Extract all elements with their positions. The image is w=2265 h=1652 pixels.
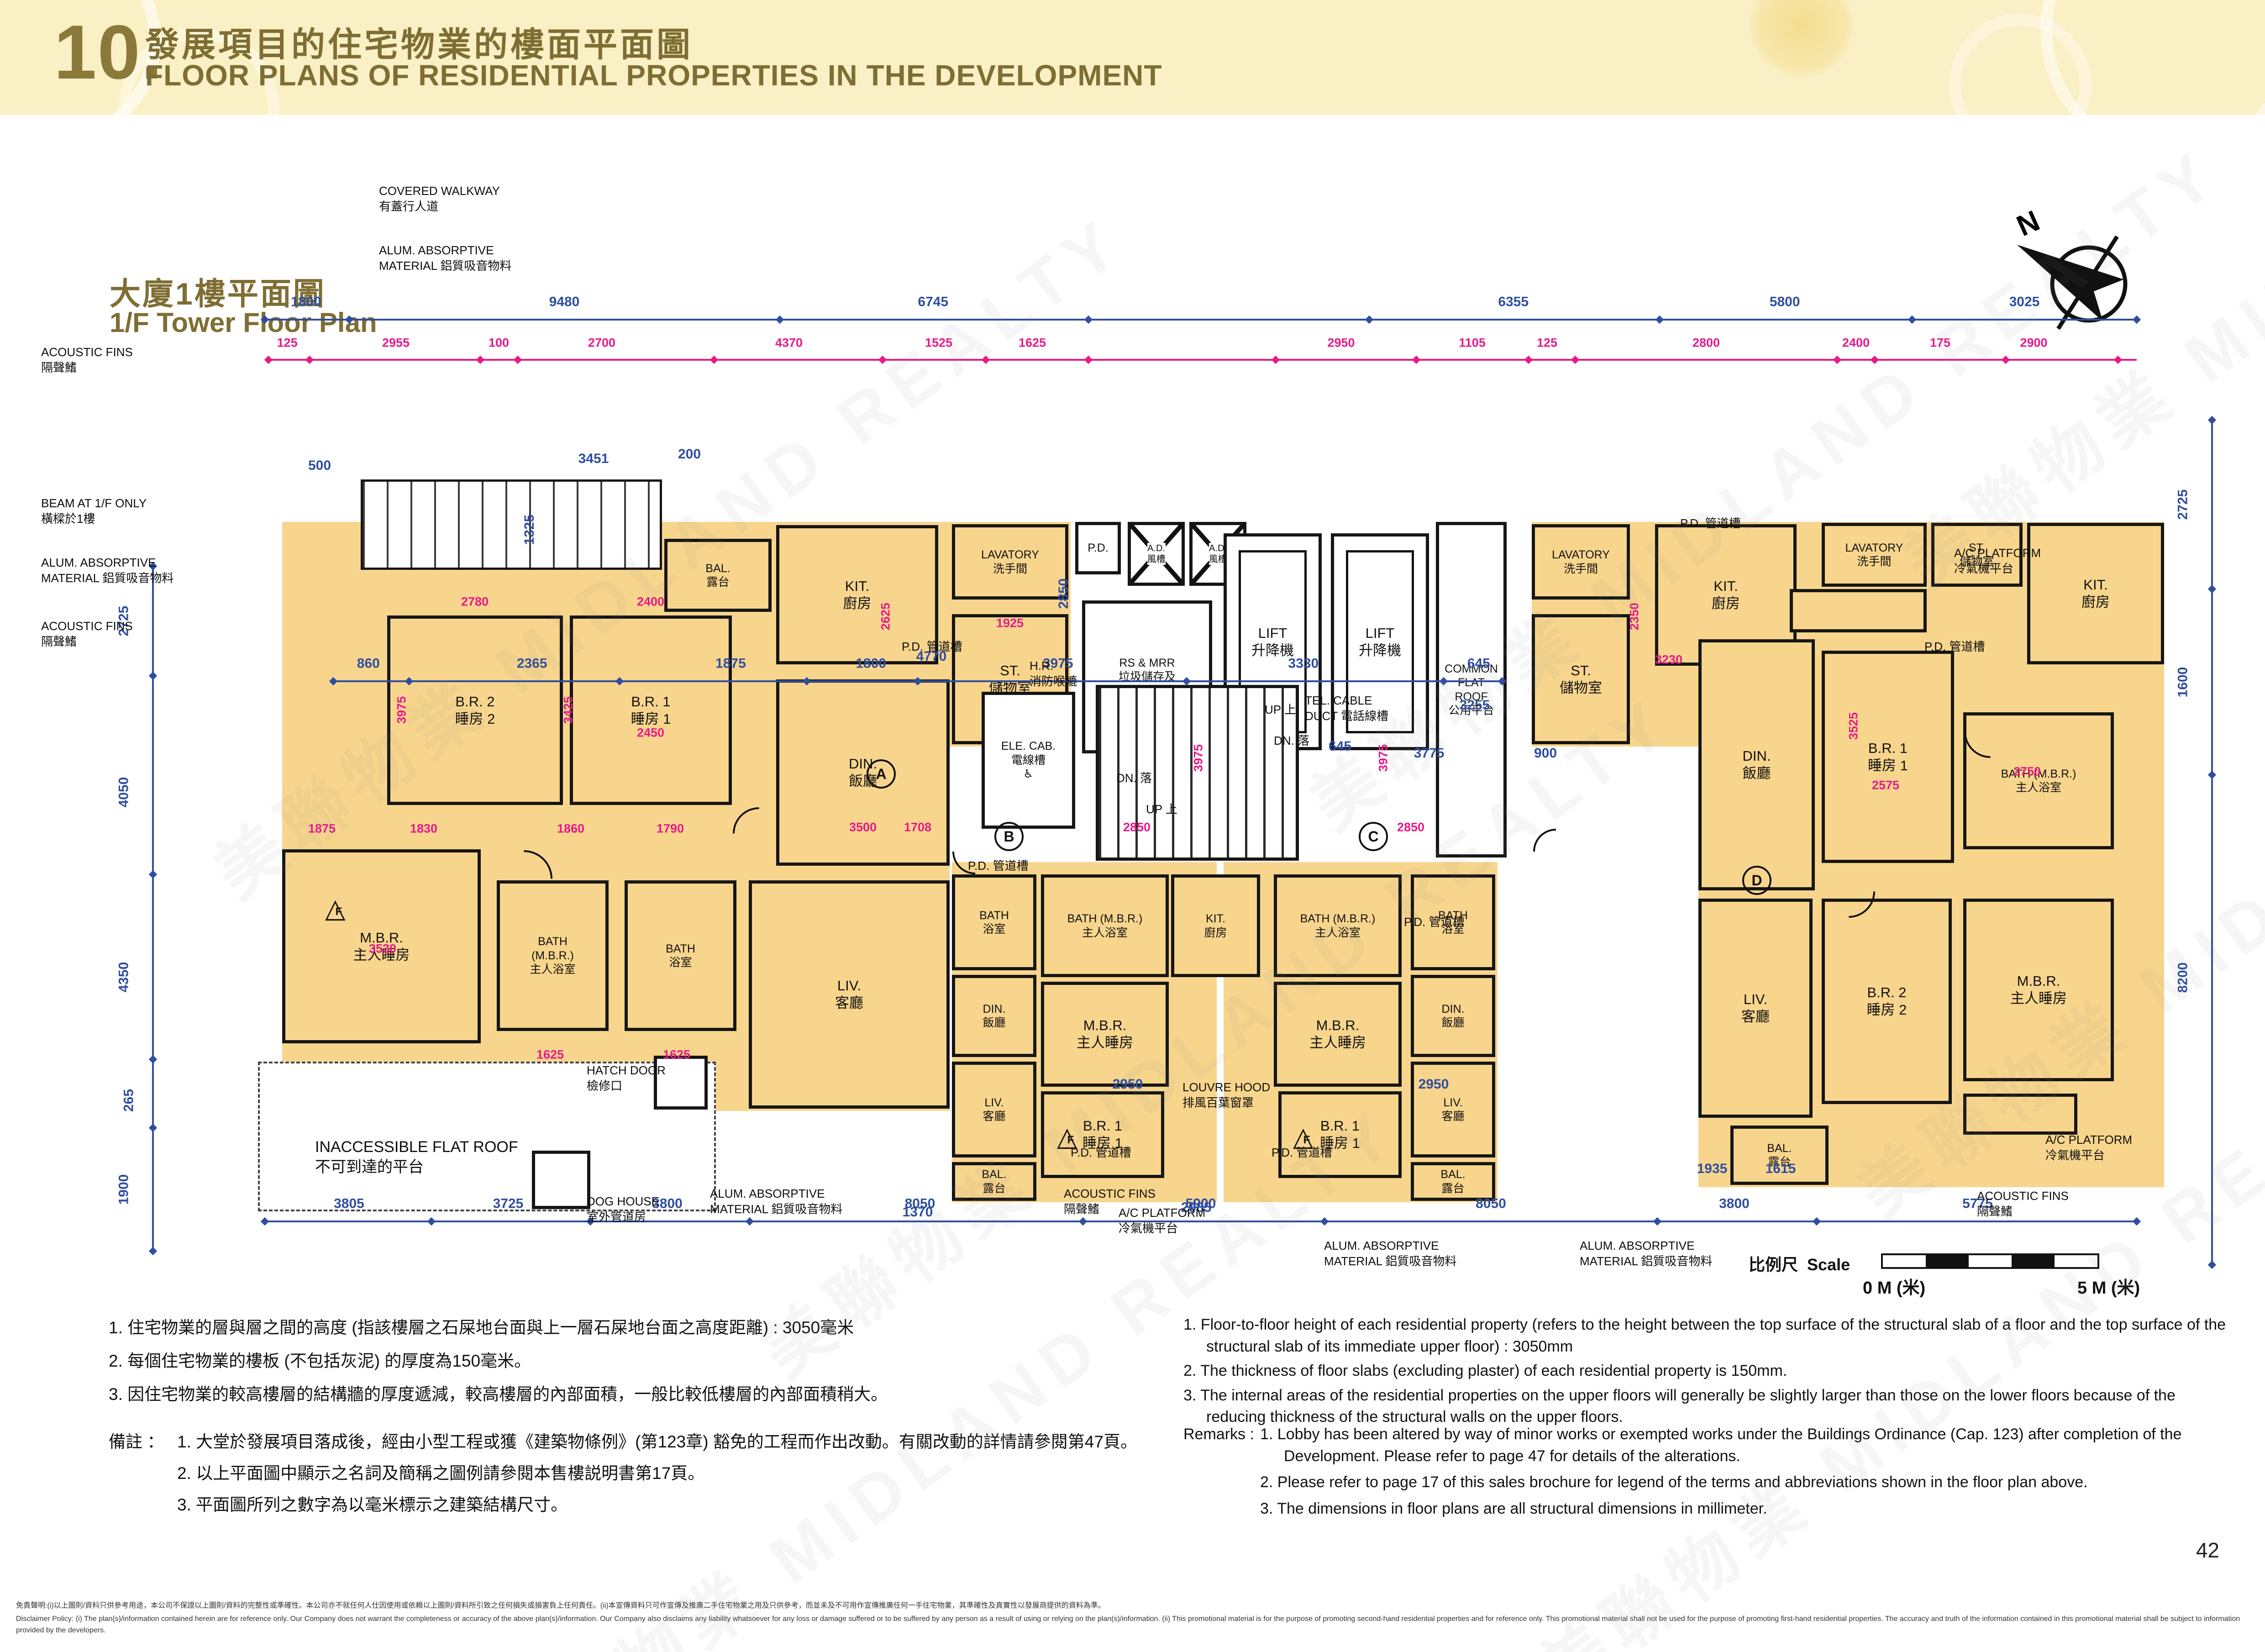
dimension-value: 2400: [1842, 336, 1870, 350]
room-label: LAVATORY洗手間: [1845, 541, 1903, 569]
dimension-tick: [2002, 356, 2010, 364]
scale-label-en: Scale: [1807, 1255, 1850, 1274]
dimension-tick: [1440, 677, 1448, 685]
room-covered-walkway: [361, 479, 662, 570]
room-br1-a: B.R. 1睡房 1: [570, 616, 732, 805]
dimension-value: 645: [1467, 656, 1490, 671]
dimension-value: 2450: [637, 726, 664, 740]
room-bal-b: BAL.露台: [952, 1162, 1036, 1201]
dimension-tick: [261, 316, 269, 324]
room-liv-c: LIV.客廳: [1411, 1062, 1495, 1157]
room-liv-a: LIV.客廳: [749, 880, 950, 1109]
room-din-c: DIN.飯廳: [1411, 975, 1495, 1057]
dimension-value: 5800: [1770, 294, 1800, 310]
dimension-value: 2950: [1327, 336, 1355, 350]
room-label: LIV.客廳: [983, 1096, 1005, 1124]
room-label: BATH (M.B.R.)主人浴室: [1300, 912, 1376, 940]
header-band: 10. 發展項目的住宅物業的樓面平面圖 FLOOR PLANS OF RESID…: [0, 0, 2265, 115]
dimension-tick: [710, 356, 718, 364]
room-din-b: DIN.飯廳: [952, 975, 1036, 1057]
dimension-value: 1800: [856, 656, 886, 671]
unit-mark: C: [1359, 822, 1388, 851]
room-lavatory-c: LAVATORY洗手間: [1532, 524, 1630, 600]
dimension-value: 3805: [334, 1196, 364, 1211]
room-label: B.R. 1睡房 1: [631, 693, 671, 728]
room-acp-d-bot: [1963, 1094, 2077, 1135]
plan-callout: DOG HOUSE室外管道房: [587, 1194, 659, 1225]
dimension-value: 6745: [918, 294, 948, 310]
plan-callout: ACOUSTIC FINS隔聲鰭: [1064, 1186, 1156, 1217]
note-item: 3. 因住宅物業的較高樓層的結構牆的厚度遞減，較高樓層的內部面積，一般比較低樓層…: [109, 1381, 1140, 1408]
room-label: BATH浴室: [666, 942, 695, 970]
note-item: 1. Lobby has been altered by way of mino…: [1260, 1424, 2243, 1467]
room-kit-b: KIT.廚房: [1171, 874, 1260, 977]
triangle-letter: F: [1293, 1134, 1320, 1147]
dimension-value: 200: [678, 447, 701, 462]
dimension-value: 1625: [536, 1048, 564, 1062]
room-label: LIV.客廳: [835, 977, 863, 1012]
room-dog-house-box: [532, 1151, 590, 1209]
room-label: M.B.R.主人睡房: [1309, 1017, 1366, 1052]
room-br2-a: B.R. 2睡房 2: [387, 616, 563, 805]
note-item: 3. The internal areas of the residential…: [1183, 1385, 2233, 1428]
dimension-value: 1325: [522, 515, 537, 545]
room-label: B.R. 1睡房 1: [1868, 740, 1908, 774]
remarks-en: Remarks : 1. Lobby has been altered by w…: [1183, 1424, 2243, 1524]
dimension-value: 1790: [657, 822, 684, 836]
dimension-value: 2850: [1056, 579, 1072, 609]
note-item: 1. 住宅物業的層與層之間的高度 (指該樓層之石屎地台面與上一層石屎地台面之高度…: [109, 1314, 1140, 1341]
dimension-line: 272516008200: [2203, 420, 2221, 1265]
dimension-value: 1105: [1459, 336, 1486, 350]
dimension-value: 2700: [588, 336, 615, 350]
disclaimer-en: Disclaimer Policy: (i) The plan(s)/infor…: [16, 1614, 2251, 1636]
room-label: LAVATORY洗手間: [981, 548, 1039, 576]
dimension-value: 3975: [1192, 744, 1206, 772]
dimension-tick: [914, 677, 922, 685]
dimension-value: 125: [277, 336, 298, 350]
note-item: 1. Floor-to-floor height of each residen…: [1183, 1314, 2233, 1357]
note-item: 2. Please refer to page 17 of this sales…: [1260, 1472, 2243, 1494]
dimension-value: 2850: [1123, 821, 1151, 835]
plan-callout: LOUVRE HOOD排風百葉窗罩: [1182, 1080, 1270, 1111]
dimension-value: 3451: [578, 451, 609, 467]
brochure-page: 10. 發展項目的住宅物業的樓面平面圖 FLOOR PLANS OF RESID…: [0, 0, 2265, 1652]
plan-callout: DN. 落: [1116, 771, 1152, 786]
dimension-axis: [2211, 420, 2213, 1265]
plan-callout: COVERED WALKWAY有蓋行人道: [379, 184, 500, 215]
dimension-tick: [149, 1247, 157, 1255]
plan-callout: P.D. 管道槽: [902, 639, 962, 655]
dimension-value: 645: [1329, 739, 1351, 754]
dimension-axis: [152, 566, 154, 1251]
room-liv-b: LIV.客廳: [952, 1062, 1036, 1157]
dimension-tick: [427, 1217, 436, 1226]
dimension-tick: [1908, 316, 1916, 324]
dimension-value: 1600: [2176, 667, 2191, 697]
notes-zh-list: 1. 住宅物業的層與層之間的高度 (指該樓層之石屎地台面與上一層石屎地台面之高度…: [109, 1314, 1140, 1415]
disclaimer-zh: 免責聲明:(i)以上圖則/資料只供參考用途，本公司不保證以上圖則/資料的完整性或…: [16, 1599, 2251, 1610]
dimension-value: 2575: [1872, 779, 1899, 793]
plan-callout: ALUM. ABSORPTIVEMATERIAL 鋁質吸音物料: [710, 1186, 842, 1217]
note-item: 2. The thickness of floor slabs (excludi…: [1183, 1360, 2233, 1382]
dimension-tick: [2208, 771, 2216, 779]
dimension-value: 2750: [2013, 765, 2041, 779]
dimension-tick: [615, 677, 624, 685]
room-label: BATH (M.B.R.)主人浴室: [1067, 912, 1143, 940]
dimension-value: 125: [1537, 336, 1557, 350]
room-mbr-d: M.B.R.主人睡房: [1963, 899, 2114, 1081]
room-bath-b: BATH浴室: [952, 874, 1036, 970]
dimension-value: 2900: [2020, 336, 2047, 350]
dimension-tick: [345, 316, 353, 324]
page-number: 42: [2196, 1538, 2219, 1563]
dimension-tick: [1084, 356, 1093, 364]
room-label: M.B.R.主人睡房: [2010, 973, 2067, 1007]
dimension-line: 180094806745635558003025: [265, 310, 2137, 329]
dimension-line: 1252955100270043701525162529501105125280…: [265, 351, 2137, 369]
room-label: LIV.客廳: [1441, 1096, 1464, 1124]
dimension-value: 1875: [715, 656, 746, 671]
dimension-value: 1800: [291, 294, 321, 310]
room-pd-core: P.D.: [1075, 522, 1121, 574]
dimension-tick: [405, 677, 413, 685]
room-kit-d: KIT.廚房: [2027, 523, 2164, 664]
dimension-tick: [1365, 316, 1373, 324]
fire-equipment-mark: △F: [1293, 1126, 1320, 1152]
dimension-value: 265: [121, 1089, 137, 1112]
plan-callout: ALUM. ABSORPTIVEMATERIAL 鋁質吸音物料: [1324, 1238, 1456, 1269]
dimension-tick: [2208, 585, 2216, 593]
note-item: 2. 以上平面圖中顯示之名詞及簡稱之圖例請參閱本售樓説明書第17頁。: [177, 1460, 1159, 1487]
room-label: B.R. 2睡房 2: [1867, 984, 1907, 1019]
plan-callout: A/C PLATFORM冷氣機平台: [2045, 1132, 2132, 1163]
dimension-tick: [513, 356, 521, 364]
room-br1-d: B.R. 1睡房 1: [1822, 651, 1954, 863]
dimension-axis: [265, 319, 2137, 321]
unit-mark: B: [994, 822, 1024, 851]
room-label: KIT.廚房: [1204, 912, 1227, 940]
room-label: DIN.飯廳: [1743, 747, 1771, 782]
dimension-value: 860: [357, 656, 380, 671]
triangle-letter: F: [1057, 1134, 1084, 1147]
plan-callout: DN. 落: [1274, 733, 1309, 749]
dimension-value: 2955: [382, 336, 410, 350]
scale-start: 0 M (米): [1863, 1273, 1925, 1299]
plan-callout: BEAM AT 1/F ONLY橫樑於1樓: [41, 496, 147, 527]
dimension-tick: [1182, 677, 1191, 685]
dimension-tick: [149, 1124, 157, 1132]
plan-callout: P.D. 管道槽: [968, 858, 1028, 874]
room-label: B.R. 2睡房 2: [455, 693, 495, 728]
dimension-value: 4350: [116, 962, 132, 993]
dimension-value: 2725: [2176, 489, 2191, 520]
room-label: BAL.露台: [705, 562, 730, 589]
plan-callout: TEL. CABLEDUCT 電話線槽: [1305, 693, 1388, 724]
dimension-value: 2400: [637, 595, 664, 609]
room-liv-d: LIV.客廳: [1698, 899, 1813, 1118]
room-st-c: ST.儲物室: [1532, 614, 1630, 744]
dimension-tick: [476, 356, 484, 364]
dimension-tick: [1813, 1217, 1821, 1226]
dimension-value: 1925: [996, 616, 1024, 631]
plan-callout: H.R.消防喉轆: [1030, 658, 1077, 689]
dimension-value: 2625: [879, 603, 893, 630]
dimension-value: 3330: [1288, 656, 1319, 671]
dimension-tick: [149, 672, 157, 680]
dimension-value: 3975: [395, 696, 409, 724]
room-label: BAL.露台: [1440, 1168, 1465, 1195]
dimension-tick: [775, 316, 783, 324]
dimension-tick: [1412, 356, 1420, 364]
dimension-value: 8200: [2176, 963, 2191, 993]
scale-label-zh: 比例尺: [1749, 1255, 1798, 1274]
dimension-value: 3500: [849, 821, 877, 835]
dimension-value: 1625: [1019, 336, 1046, 350]
note-item: 3. The dimensions in floor plans are all…: [1260, 1498, 2243, 1520]
plan-callout: ACOUSTIC FINS隔聲鰭: [41, 345, 133, 376]
dimension-line: 2725405043502651900: [144, 566, 162, 1251]
plan-callout: ACOUSTIC FINS隔聲鰭: [41, 619, 133, 650]
dimension-tick: [1320, 1217, 1328, 1226]
room-din-a: DIN.飯廳: [776, 679, 950, 866]
fire-equipment-mark: △F: [1057, 1126, 1084, 1152]
plan-callout: P.D. 管道槽: [1680, 516, 1740, 531]
dimension-value: 1875: [308, 822, 336, 836]
dimension-tick: [1833, 356, 1841, 364]
unit-mark: A: [867, 759, 896, 789]
dimension-value: 3230: [1655, 653, 1682, 667]
room-mbr-b: M.B.R.主人睡房: [1041, 982, 1169, 1087]
room-label: BAL.露台: [982, 1168, 1006, 1195]
dimension-value: 1370: [903, 1205, 933, 1220]
dimension-value: 3725: [493, 1196, 524, 1211]
dimension-value: 2950: [1419, 1077, 1449, 1092]
dimension-value: 1625: [663, 1048, 690, 1062]
dimension-value: 6355: [1498, 294, 1529, 310]
room-label: DIN.飯廳: [983, 1002, 1005, 1030]
room-bath-mbr-a: BATH(M.B.R.)主人浴室: [497, 880, 609, 1031]
dimension-tick: [1571, 356, 1579, 364]
room-bath-mbr-b: BATH (M.B.R.)主人浴室: [1041, 874, 1169, 977]
room-mbr-c: M.B.R.主人睡房: [1274, 982, 1402, 1087]
dimension-tick: [2208, 416, 2216, 424]
plan-callout: HATCH DOOR檢修口: [587, 1063, 666, 1094]
plan-callout: UP 上: [1146, 802, 1177, 817]
dimension-tick: [305, 356, 314, 364]
dimension-value: 1830: [410, 822, 437, 836]
remarks-zh-list: 1. 大堂於發展項目落成後，經由小型工程或獲《建築物條例》(第123章) 豁免的…: [177, 1428, 1159, 1523]
dimension-tick: [149, 870, 157, 879]
dimension-value: 1900: [116, 1174, 132, 1205]
room-din-d: DIN.飯廳: [1698, 639, 1815, 890]
floral-ornament: [1749, 0, 1854, 78]
dimension-value: 2365: [517, 656, 547, 671]
dimension-value: 8050: [1476, 1196, 1506, 1211]
dimension-tick: [2208, 1261, 2216, 1269]
dimension-value: 1935: [1697, 1161, 1728, 1177]
room-br2-d: B.R. 2睡房 2: [1822, 899, 1952, 1104]
dimension-tick: [1655, 316, 1663, 324]
scale-bar-graphic: [1881, 1253, 2099, 1269]
dimension-tick: [981, 356, 989, 364]
dimension-value: 1860: [557, 822, 584, 836]
dimension-value: 2950: [1113, 1077, 1143, 1092]
room-bath-a: BATH浴室: [625, 880, 736, 1031]
dimension-value: 4370: [775, 336, 803, 350]
plan-callout: INACCESSIBLE FLAT ROOF不可到達的平台: [315, 1137, 518, 1177]
dimension-tick: [1078, 1217, 1087, 1226]
dimension-value: 3530: [369, 942, 396, 956]
dimension-value: 100: [489, 336, 509, 350]
dimension-tick: [803, 677, 811, 685]
room-lavatory-d: LAVATORY洗手間: [1822, 523, 1927, 587]
room-ad-1: A.D.風槽: [1128, 522, 1185, 586]
dimension-value: 2350: [1628, 603, 1642, 630]
room-lavatory-a: LAVATORY洗手間: [952, 524, 1068, 600]
dimension-tick: [149, 1055, 157, 1063]
dimension-value: 2780: [461, 595, 489, 609]
dimension-value: 175: [1930, 336, 1950, 350]
dimension-value: 900: [1534, 746, 1557, 761]
dimension-value: 9480: [549, 294, 580, 310]
dimension-tick: [261, 1217, 269, 1226]
fire-equipment-mark: △F: [325, 898, 352, 924]
dimension-value: 4050: [116, 777, 132, 808]
room-label: P.D.: [1088, 541, 1108, 555]
note-item: 1. 大堂於發展項目落成後，經由小型工程或獲《建築物條例》(第123章) 豁免的…: [177, 1428, 1159, 1455]
scale-bar: 比例尺 Scale 0 M (米) 5 M (米): [1749, 1249, 2182, 1299]
room-label: LIV.客廳: [1741, 991, 1770, 1026]
remarks-en-heading: Remarks :: [1183, 1424, 1260, 1524]
remarks-zh-heading: 備註 ：: [109, 1428, 177, 1523]
plan-callout: ALUM. ABSORPTIVEMATERIAL 鋁質吸音物料: [1580, 1238, 1712, 1269]
dimension-tick: [1524, 356, 1532, 364]
plan-callout: ALUM. ABSORPTIVEMATERIAL 鋁質吸音物料: [379, 243, 511, 274]
room-bal-a: BAL.露台: [664, 539, 772, 612]
plan-callout: ACOUSTIC FINS隔聲鰭: [1977, 1189, 2069, 1220]
room-label: M.B.R.主人睡房: [1077, 1017, 1133, 1052]
room-bath-mbr-c: BATH (M.B.R.)主人浴室: [1274, 874, 1402, 977]
dimension-value: 3425: [562, 696, 576, 724]
note-item: 2. 每個住宅物業的樓板 (不包括灰泥) 的厚度為150毫米。: [109, 1347, 1140, 1374]
dimension-tick: [746, 1217, 754, 1226]
dimension-value: 2850: [1397, 821, 1424, 835]
unit-mark: D: [1742, 866, 1771, 895]
dimension-value: 3775: [1414, 746, 1445, 761]
scale-end: 5 M (米): [2077, 1273, 2140, 1299]
dimension-tick: [2114, 356, 2122, 364]
plan-callout: A/C PLATFORM冷氣機平台: [1954, 546, 2041, 577]
room-label: KIT.廚房: [2081, 576, 2110, 611]
plan-callout: UP 上: [1265, 702, 1296, 718]
dimension-value: 500: [308, 458, 331, 474]
notes-en-list: 1. Floor-to-floor height of each residen…: [1183, 1314, 2233, 1431]
remarks-en-list: 1. Lobby has been altered by way of mino…: [1260, 1424, 2243, 1524]
dimension-value: 2800: [1692, 336, 1720, 350]
room-label: LAVATORY洗手間: [1552, 548, 1610, 576]
note-item: 3. 平面圖所列之數字為以毫米標示之建築結構尺寸。: [177, 1491, 1159, 1518]
room-label: ST.儲物室: [1560, 662, 1602, 697]
dimension-tick: [2133, 1217, 2141, 1226]
dimension-tick: [1084, 316, 1093, 324]
triangle-letter: F: [325, 905, 352, 918]
dimension-value: 1615: [1766, 1161, 1796, 1177]
room-label: BATH浴室: [979, 909, 1009, 936]
floor-plan-layer: BAL.露台KIT.廚房LAVATORY洗手間ST.儲物室B.R. 2睡房 2B…: [0, 164, 2265, 1288]
room-label: KIT.廚房: [1712, 578, 1740, 612]
dimension-tick: [1272, 356, 1280, 364]
dimension-tick: [1871, 356, 1879, 364]
dimension-value: 3525: [1847, 712, 1861, 740]
plan-callout: P.D. 管道槽: [1924, 639, 1985, 655]
dimension-value: 1525: [925, 336, 952, 350]
room-bal-c: BAL.露台: [1411, 1162, 1495, 1201]
plan-callout: ALUM. ABSORPTIVEMATERIAL 鋁質吸音物料: [41, 555, 173, 586]
disclaimer: 免責聲明:(i)以上圖則/資料只供參考用途，本公司不保證以上圖則/資料的完整性或…: [16, 1599, 2251, 1636]
dimension-value: 1708: [904, 821, 931, 835]
room-label: KIT.廚房: [843, 578, 872, 612]
door-swing-arc: [1533, 829, 1579, 874]
room-acp-d-top: [1790, 589, 1927, 632]
room-label: ELE. CAB.電線槽♿: [1001, 739, 1056, 781]
room-label: BATH(M.B.R.)主人浴室: [530, 935, 575, 977]
dimension-tick: [2133, 316, 2141, 324]
dimension-tick: [264, 356, 273, 364]
dimension-value: 3975: [1377, 744, 1391, 772]
remarks-zh: 備註 ： 1. 大堂於發展項目落成後，經由小型工程或獲《建築物條例》(第123章…: [109, 1428, 1159, 1523]
room-ele-cab: ELE. CAB.電線槽♿: [982, 692, 1075, 829]
dimension-value: 3800: [1719, 1196, 1750, 1211]
dimension-tick: [1653, 1217, 1661, 1226]
section-title-en: FLOOR PLANS OF RESIDENTIAL PROPERTIES IN…: [145, 58, 1162, 92]
room-label: DIN.飯廳: [1441, 1002, 1464, 1030]
dimension-axis: [265, 359, 2137, 361]
dimension-line: 86023651875180039753330645: [333, 672, 1502, 690]
dimension-value: 3025: [2009, 294, 2040, 310]
dimension-value: 3255: [1460, 698, 1490, 713]
plan-callout: P.D. 管道槽: [1404, 915, 1464, 930]
dimension-tick: [878, 356, 887, 364]
room-label: A.D.風槽: [1147, 543, 1166, 565]
